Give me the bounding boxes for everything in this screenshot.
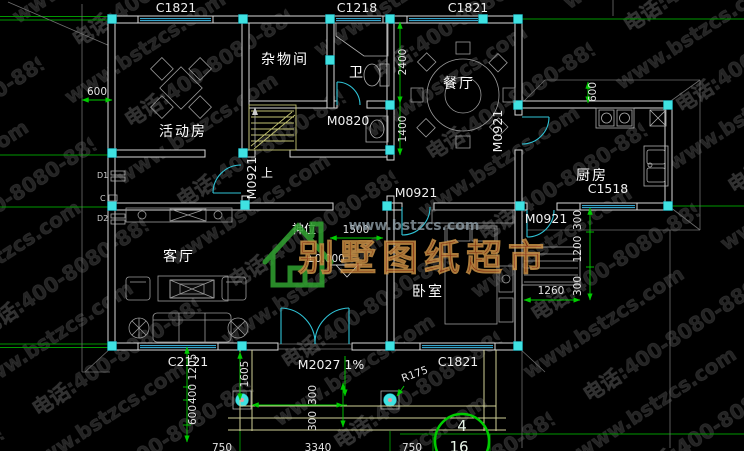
window-c1218-top xyxy=(334,16,383,23)
floorplan-drawing: www.bstzcs.com 电话:400-8080-889 xyxy=(0,0,744,451)
dim-2400: 2400 xyxy=(397,49,409,76)
tag-c: C xyxy=(100,194,106,203)
label-dining-room: 餐厅 xyxy=(443,76,475,92)
label-m0820: M0820 xyxy=(327,113,370,128)
logo-site-url: www.bstzcs.com xyxy=(349,218,480,234)
dim-1260: 1260 xyxy=(538,285,565,297)
label-m0921-bedroom: M0921 xyxy=(395,185,438,200)
dim-1400: 1400 xyxy=(397,116,409,143)
label-c2121: C2121 xyxy=(168,354,209,369)
label-bedroom: 卧室 xyxy=(412,283,444,300)
window-c2121-bottom xyxy=(138,343,218,350)
label-storage-room: 杂物间 xyxy=(261,52,309,68)
label-stair-up: 上 xyxy=(261,166,273,180)
window-c1821-top-left xyxy=(138,16,213,23)
sheet-total: 16 xyxy=(449,438,468,451)
window-c1821-bottom xyxy=(420,343,495,350)
label-kitchen: 厨房 xyxy=(576,168,608,184)
label-c1821-bottom: C1821 xyxy=(438,354,479,369)
dim-600-left: 600 xyxy=(87,86,107,98)
label-c1218: C1218 xyxy=(337,0,378,15)
label-activity-room: 活动房 xyxy=(159,124,207,140)
label-bathroom: 卫 xyxy=(349,65,365,81)
dim-750-left: 750 xyxy=(212,442,232,451)
floorplan-canvas: www.bstzcs.com 电话:400-8080-889 xyxy=(0,0,744,451)
window-c1821-top-right xyxy=(407,16,480,23)
label-m0921-kitchen-back: M0921 xyxy=(525,211,568,226)
logo-brand-text: 别墅图纸超市 xyxy=(298,238,550,279)
dim-300-step-a: 300 xyxy=(307,385,319,405)
window-c1518-kitchen xyxy=(580,203,637,210)
label-m0921-dining: M0921 xyxy=(490,110,505,153)
label-c1821-top-left: C1821 xyxy=(156,0,197,15)
label-living-room: 客厅 xyxy=(163,248,195,265)
label-c1821-top-right: C1821 xyxy=(448,0,489,15)
dim-3340: 3340 xyxy=(305,442,332,451)
dim-400: 400 xyxy=(187,384,199,404)
dim-1605: 1605 xyxy=(239,361,251,388)
dim-300-step-b: 300 xyxy=(307,411,319,431)
tag-d1: D1 xyxy=(97,171,108,180)
dim-600-kitchen: 600 xyxy=(587,82,599,102)
dim-300-b: 300 xyxy=(572,276,584,296)
label-m0921-hall: M0921 xyxy=(244,157,259,200)
label-m2027: M2027 1% xyxy=(298,357,365,372)
sheet-number: 4 xyxy=(457,417,467,435)
dim-300-a: 300 xyxy=(572,210,584,230)
dim-600-porch: 600 xyxy=(187,405,199,425)
dim-1200: 1200 xyxy=(572,236,584,263)
tag-d2: D2 xyxy=(97,214,108,223)
dim-750-right: 750 xyxy=(402,442,422,451)
